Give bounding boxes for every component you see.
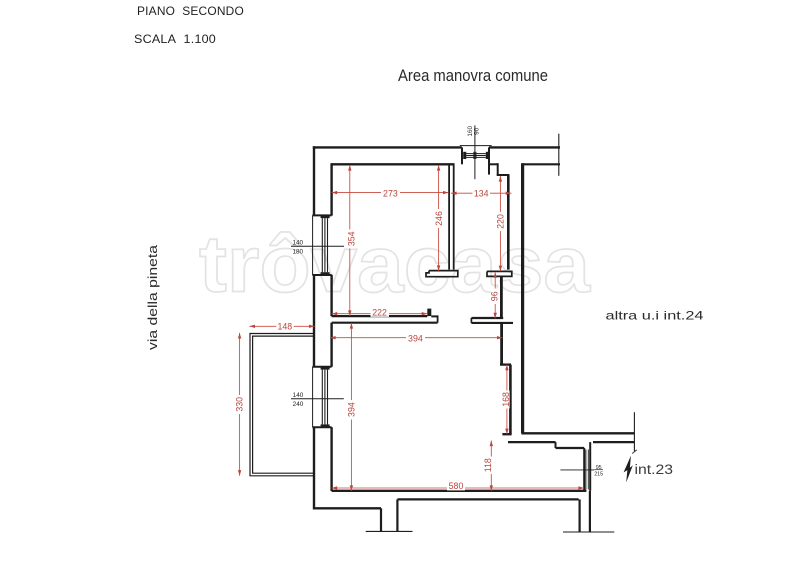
svg-text:SCALA 1.100: SCALA 1.100 (134, 32, 216, 46)
svg-text:394: 394 (408, 334, 423, 344)
svg-text:330: 330 (234, 397, 244, 412)
svg-text:394: 394 (346, 402, 356, 417)
svg-text:134: 134 (474, 188, 489, 198)
svg-text:168: 168 (501, 392, 511, 407)
svg-text:240: 240 (293, 401, 304, 408)
svg-text:trôvacasa: trôvacasa (199, 220, 591, 309)
svg-text:246: 246 (434, 211, 444, 226)
svg-text:220: 220 (495, 214, 505, 229)
svg-text:148: 148 (277, 321, 292, 331)
svg-text:580: 580 (449, 481, 464, 491)
svg-text:95: 95 (596, 465, 602, 471)
svg-text:140: 140 (292, 240, 303, 247)
svg-text:PIANO SECONDO: PIANO SECONDO (137, 4, 244, 18)
svg-text:354: 354 (347, 231, 357, 246)
svg-text:int.23: int.23 (635, 462, 674, 477)
svg-text:140: 140 (293, 392, 304, 399)
svg-text:via della pineta: via della pineta (145, 244, 160, 350)
svg-text:180: 180 (292, 249, 303, 256)
svg-text:90: 90 (474, 127, 481, 135)
svg-text:118: 118 (483, 458, 493, 472)
svg-text:222: 222 (372, 308, 387, 318)
svg-text:96: 96 (490, 291, 500, 301)
svg-text:altra u.i int.24: altra u.i int.24 (606, 309, 704, 323)
svg-text:Area manovra comune: Area manovra comune (398, 67, 548, 85)
svg-text:273: 273 (383, 188, 398, 198)
svg-text:215: 215 (594, 472, 603, 478)
